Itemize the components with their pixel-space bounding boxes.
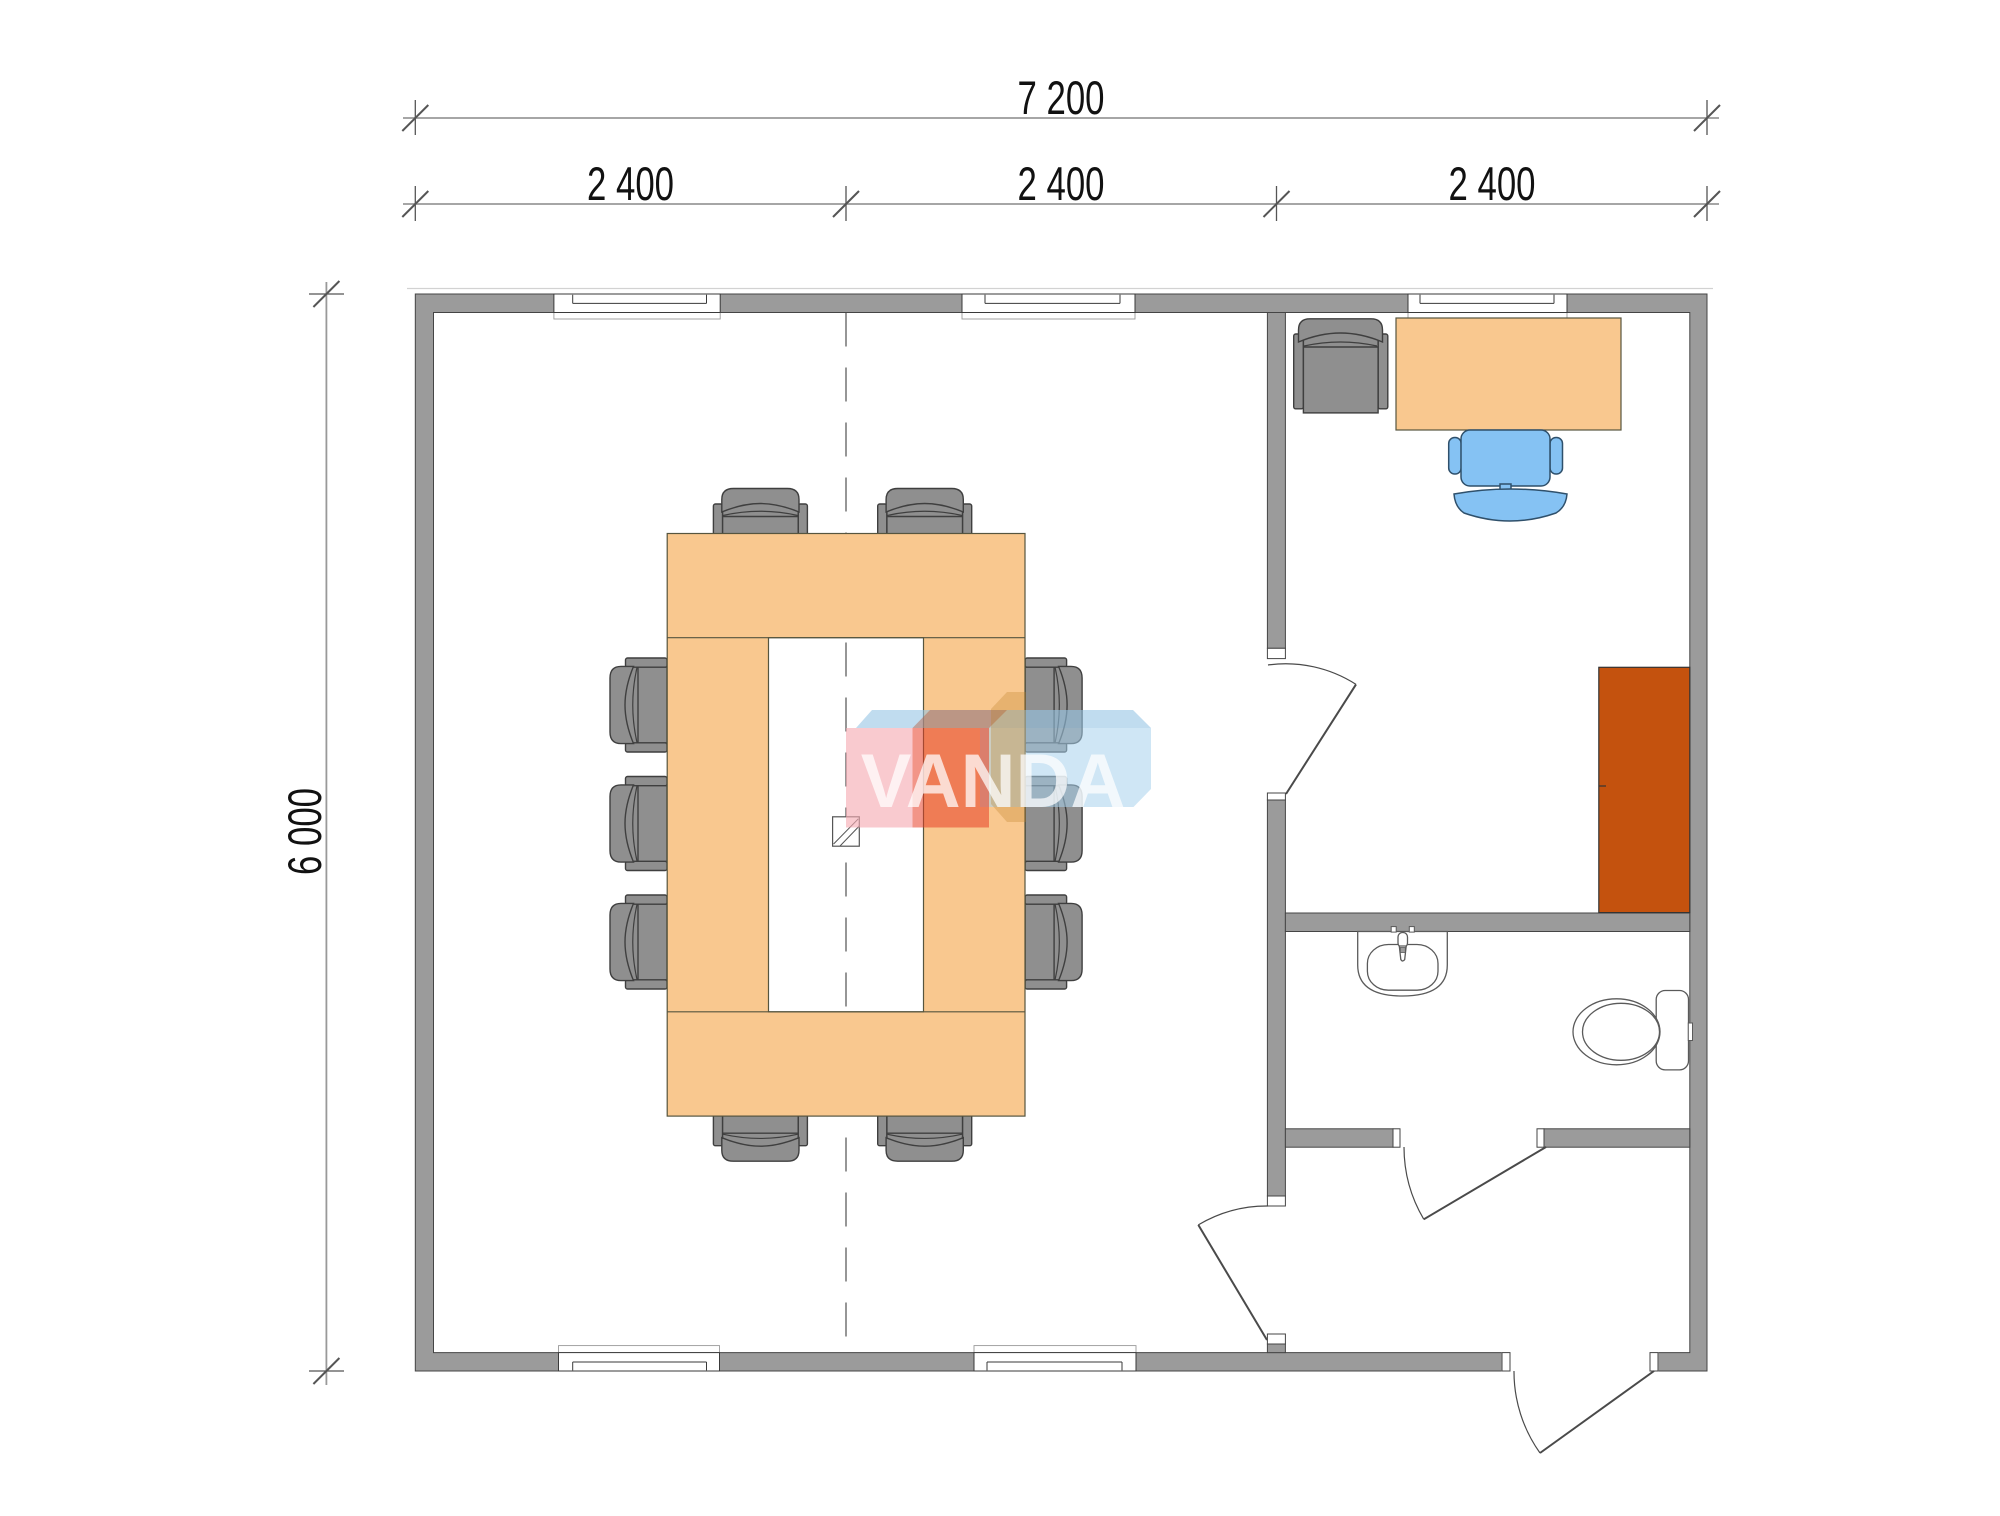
svg-text:VANDA: VANDA: [861, 739, 1126, 824]
svg-text:2 400: 2 400: [587, 158, 674, 210]
svg-text:6 000: 6 000: [279, 788, 331, 875]
svg-text:2 400: 2 400: [1017, 158, 1104, 210]
svg-text:7 200: 7 200: [1017, 72, 1104, 124]
svg-text:2 400: 2 400: [1448, 158, 1535, 210]
